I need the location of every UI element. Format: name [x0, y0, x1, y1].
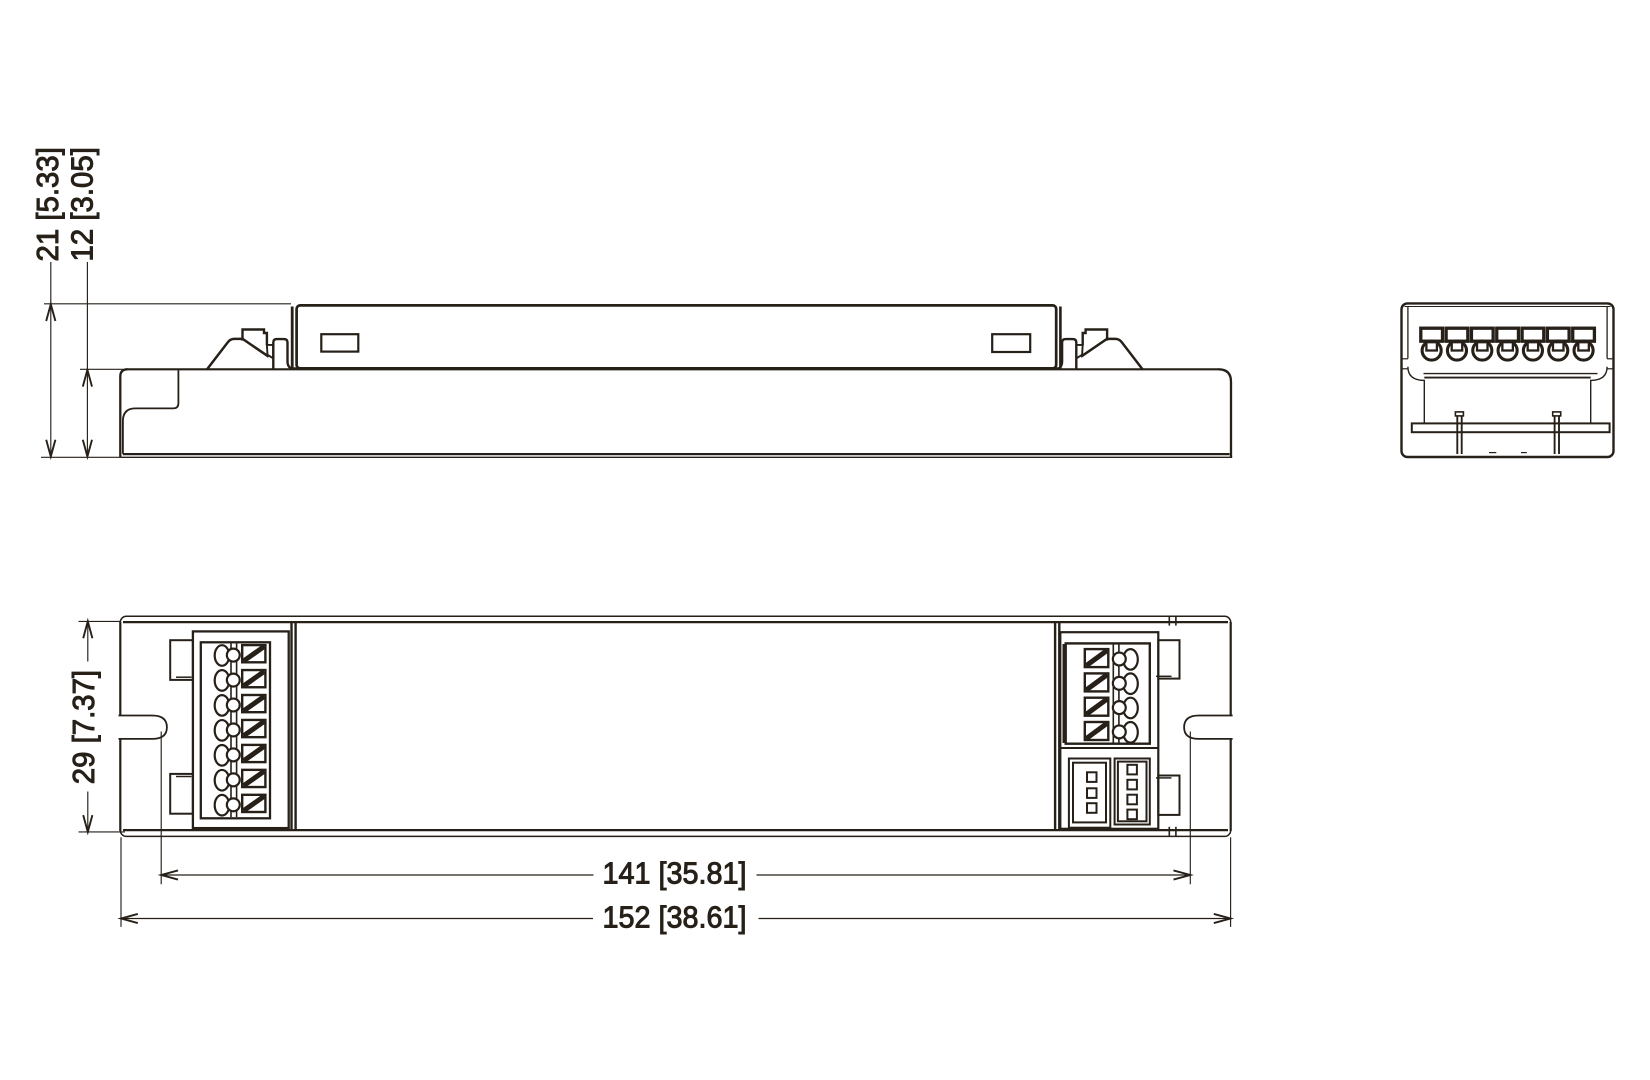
svg-text:29 [7.37]: 29 [7.37]	[66, 670, 101, 784]
svg-text:21 [5.33]: 21 [5.33]	[30, 147, 65, 261]
svg-text:141 [35.81]: 141 [35.81]	[603, 856, 747, 891]
svg-text:152 [38.61]: 152 [38.61]	[603, 900, 747, 935]
svg-text:12 [3.05]: 12 [3.05]	[65, 147, 100, 261]
